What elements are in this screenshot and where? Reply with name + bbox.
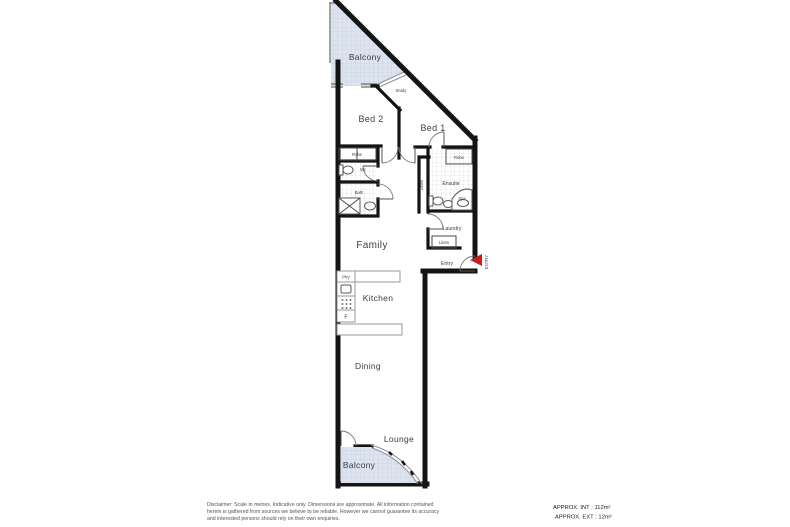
disclaimer-line2: herein is gathered from sources we belie… bbox=[207, 509, 440, 515]
ensuite-basin-icon bbox=[444, 201, 453, 208]
interior-walls bbox=[338, 86, 475, 446]
bed2-label: Bed 2 bbox=[358, 114, 383, 124]
balcony-top-label: Balcony bbox=[349, 52, 382, 62]
spa-label: Spa bbox=[458, 196, 466, 201]
entry-label: Entry bbox=[441, 261, 454, 267]
ensuite-toilet-tank-icon bbox=[429, 196, 433, 206]
fridge-label: F bbox=[344, 315, 347, 321]
kitchen-label: Kitchen bbox=[363, 293, 393, 303]
entry-arrow-label: ENTRY bbox=[484, 255, 489, 269]
approx-int-label: APPROX. INT : 112m² bbox=[553, 505, 611, 511]
robe-right-label: Robe bbox=[454, 155, 465, 160]
floor-plan-page: Balcony Study Bed 2 Bed 1 Robe Wc Ba bbox=[0, 0, 790, 527]
laundry-label: Laundry bbox=[443, 226, 462, 232]
balcony-top-floor bbox=[331, 4, 404, 86]
bath-basin-icon bbox=[365, 202, 376, 210]
ensuite-label: Ensuite bbox=[442, 181, 459, 187]
bath-label: Bath bbox=[355, 190, 364, 195]
dining-label: Dining bbox=[355, 361, 381, 371]
bed1-label: Bed 1 bbox=[420, 123, 445, 133]
kitchen-area: Ptry F Kitchen bbox=[337, 271, 402, 335]
study-label: Study bbox=[396, 88, 408, 93]
footer: Disclaimer: Scale in metres. Indicative … bbox=[207, 502, 612, 522]
disclaimer-line1: Disclaimer: Scale in metres. Indicative … bbox=[207, 502, 434, 508]
cooktop-icon bbox=[342, 299, 352, 309]
linen-hall-label: Linen bbox=[419, 179, 424, 190]
lounge-label: Lounge bbox=[384, 434, 414, 444]
entry-area: Entry ENTRY bbox=[441, 254, 489, 269]
family-label: Family bbox=[356, 240, 387, 251]
wc-label: Wc bbox=[360, 167, 366, 172]
approx-ext-label: APPROX. EXT : 12m² bbox=[555, 515, 612, 521]
balcony-bottom: Balcony bbox=[341, 445, 422, 484]
balcony-top: Balcony bbox=[330, 2, 406, 88]
toilet-icon bbox=[343, 166, 353, 174]
pantry-label: Ptry bbox=[342, 275, 350, 280]
robe-left-label: Robe bbox=[352, 152, 363, 157]
disclaimer-line3: and interested persons should rely on th… bbox=[207, 516, 340, 522]
kitchen-counter-bottom bbox=[337, 324, 402, 335]
balcony-bottom-label: Balcony bbox=[343, 460, 376, 470]
linen-entry-label: Linen bbox=[439, 240, 450, 245]
ensuite-toilet-icon bbox=[433, 197, 443, 205]
sink-icon bbox=[341, 285, 351, 293]
robe-left: Robe bbox=[339, 148, 376, 160]
floor-plan-canvas: Balcony Study Bed 2 Bed 1 Robe Wc Ba bbox=[0, 0, 790, 527]
toilet-tank-icon bbox=[339, 165, 343, 175]
